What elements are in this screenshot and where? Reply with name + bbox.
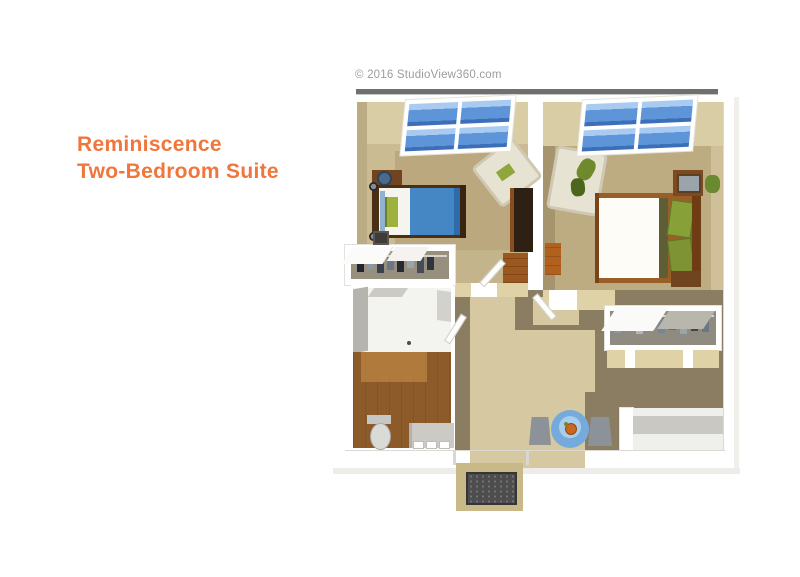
page: Reminiscence Two-Bedroom Suite © 2016 St… xyxy=(0,0,800,577)
sink-fixture xyxy=(413,441,424,449)
bed-2-pillow-green xyxy=(667,238,695,275)
bathroom-wood-floor-light xyxy=(361,352,427,382)
bed-1-blanket xyxy=(410,188,460,235)
outer-wall-bevel-right xyxy=(734,97,739,469)
shower-drain xyxy=(407,341,411,345)
shower-wall xyxy=(368,288,408,297)
potted-plant xyxy=(570,178,586,197)
table-lamp xyxy=(377,171,392,186)
interior-wall-line xyxy=(723,102,724,451)
bedroom-1-window xyxy=(400,95,515,155)
potted-plant xyxy=(705,175,720,193)
bed-2-folded-blanket xyxy=(659,198,668,278)
tv-screen xyxy=(677,174,701,193)
plan-title-line2: Two-Bedroom Suite xyxy=(77,158,279,185)
floorplan-3d xyxy=(333,85,740,525)
window-pane xyxy=(640,100,694,124)
orange-dresser xyxy=(545,243,561,275)
window-pane xyxy=(407,102,458,126)
closet-2 xyxy=(605,306,721,350)
media-dresser xyxy=(673,170,703,196)
closet-2-door-jamb xyxy=(683,350,693,368)
bedroom-2-east-wall-face xyxy=(711,146,723,290)
entry-nook-wall xyxy=(620,408,633,450)
toilet-bowl xyxy=(370,423,391,450)
bedroom-2-window xyxy=(577,95,697,155)
bedroom-1-west-wall-face xyxy=(357,102,367,250)
bed-2-headboard xyxy=(692,193,701,283)
window-pane xyxy=(405,128,456,152)
dining-chair-right xyxy=(588,417,612,446)
doormat xyxy=(466,472,517,505)
outer-wall-bevel-bottom xyxy=(333,468,740,474)
dresser xyxy=(503,253,528,283)
shower-wall xyxy=(353,287,368,354)
armchair-cushion xyxy=(496,163,515,181)
plan-title: Reminiscence Two-Bedroom Suite xyxy=(77,131,279,185)
bedroom-2-door-frame xyxy=(549,290,577,310)
bed-1-footboard xyxy=(460,185,466,238)
sink-fixture xyxy=(439,441,450,449)
hanging-clothes xyxy=(427,257,434,270)
closet-2-door-jamb xyxy=(625,350,635,368)
window-pane xyxy=(637,125,691,149)
bathroom xyxy=(351,285,453,450)
plan-title-line1: Reminiscence xyxy=(77,131,279,158)
bed-1-pillow-green xyxy=(385,197,398,227)
wardrobe xyxy=(510,188,533,252)
nightstand xyxy=(671,271,701,287)
window-pane xyxy=(582,128,636,152)
bed-1-post xyxy=(369,182,378,191)
window-pane xyxy=(460,100,511,124)
copyright-watermark: © 2016 StudioView360.com xyxy=(355,69,502,81)
sink-fixture xyxy=(426,441,437,449)
bedside-stool xyxy=(373,231,389,245)
bed-2-duvet xyxy=(599,198,659,278)
entry-nook-step xyxy=(633,416,723,434)
interior-wall-line xyxy=(345,450,725,451)
back-wall-top-highlight xyxy=(356,94,718,95)
shower-wall xyxy=(437,290,451,322)
closet-1 xyxy=(345,245,455,285)
bed-2 xyxy=(595,193,701,283)
centerpiece-leaf xyxy=(564,422,568,426)
dining-chair-left xyxy=(529,417,551,445)
window-pane xyxy=(458,125,509,149)
closet-2-south-wall-face xyxy=(607,350,719,368)
door-jamb xyxy=(526,451,529,465)
window-pane xyxy=(584,102,638,126)
